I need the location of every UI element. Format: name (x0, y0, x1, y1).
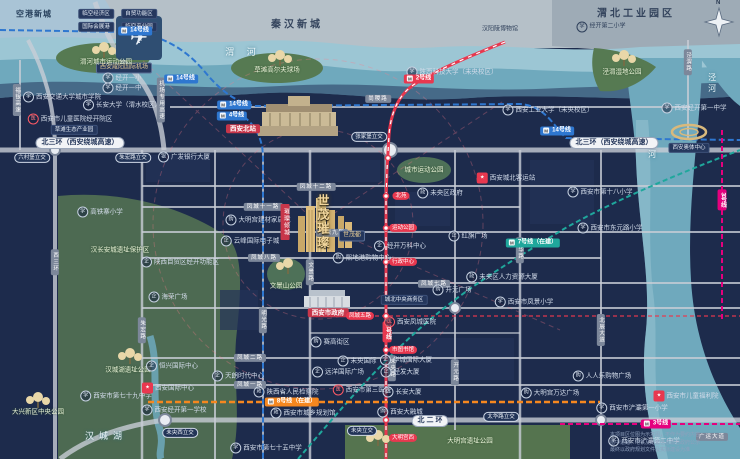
shop-label-113: 购西安大融城 (377, 407, 423, 418)
road-v-label-58: 福银高速 (13, 84, 21, 116)
map-canvas: ✈ N 空港新城临空经济区自贸功能区国际会展港临空产业园西安咸阳国际机场秦汉新城… (0, 0, 740, 459)
poi-label-117: 企天朗时代中心 (212, 371, 264, 382)
metro-icon: M (644, 421, 650, 427)
tag-label-28: 草滩生态产业园 (51, 125, 98, 135)
poi-label-109: 企华城国际大厦 (380, 355, 432, 366)
poi-icon: 企 (381, 367, 392, 378)
school-icon: 学 (568, 187, 579, 198)
red-poi-icon: ★ (654, 391, 665, 402)
shop-label-100: 购熙地港购物中心 (333, 253, 392, 264)
station-label-82: 大明宫西 (389, 434, 417, 442)
school-icon: 学 (142, 405, 153, 416)
metro-icon: M (543, 128, 549, 134)
poi-icon: 企 (212, 371, 223, 382)
station-label-81: 市图书馆 (389, 346, 417, 354)
station-label-77: 凤城五路 (346, 312, 374, 320)
poi-label-97: 企云峰国际电子城 (221, 236, 280, 247)
road-v-label-69: 文景路 (306, 259, 314, 285)
m-teal-label-90: M7号线（在建） (506, 239, 560, 248)
hospital-label-105: 医西安凤城医院 (384, 317, 436, 328)
red-poi-icon: ★ (142, 383, 153, 394)
gov-icon: 政 (417, 188, 428, 199)
poi-label-110: 企经发大厦 (381, 367, 420, 378)
disclaimer-text: 本项目区位图为示意图，不作为要约内容 图中道路、地铁及配套信息源自政府公示 最终… (610, 432, 700, 455)
tag-label-47: 城北中央商务区 (381, 295, 428, 305)
m-mag-v-label-92: 3号线 (718, 189, 727, 210)
gov-label-95: 政未央区政府 (417, 188, 463, 199)
school-icon: 学 (23, 92, 34, 103)
park-label-19: 汉长安城遗址保护区 (91, 246, 150, 253)
river-label-13: 汉城湖 (85, 431, 127, 441)
school-icon: 学 (83, 100, 94, 111)
m-red-label-88: M2号线 (404, 75, 434, 84)
tag-label-2: 自贸功能区 (121, 9, 157, 19)
poi-icon: 企 (312, 367, 323, 378)
m-blue-label-86: M4号线 (217, 112, 247, 121)
hospital-icon: 医 (333, 385, 344, 396)
m-mag-label-93: M3号线 (641, 420, 671, 429)
ic-label-55: 未央立交 (347, 426, 377, 436)
road-v-label-59: 西三环 (51, 249, 59, 275)
ic-label-56: 太华路立交 (483, 412, 519, 422)
poi-icon: 企 (449, 231, 460, 242)
poi-label-101: 企经开万科中心 (374, 241, 426, 252)
school-label-32: 学高铁寨小学 (77, 207, 123, 218)
school-label-24: 学经开一中 (103, 83, 142, 94)
school-icon: 学 (578, 223, 589, 234)
hospital-label-27: 医西安市儿童医院经开院区 (28, 114, 113, 125)
school-label-31: 学西安经开第一中学 (662, 103, 727, 114)
school-icon: 学 (230, 443, 241, 454)
river-label-10: 渭 河 (225, 47, 261, 57)
metro-icon: M (167, 76, 173, 82)
school-label-37: 学西安市第七十五中学 (230, 443, 302, 454)
m-blue-label-84: M14号线 (164, 75, 198, 84)
red-poi-label-43: ★西安城北客运站 (477, 173, 536, 184)
park-label-20: 汉城湖遗址公园 (105, 366, 151, 373)
school-icon: 学 (495, 297, 506, 308)
region-label-6: 秦汉新城 (271, 19, 323, 31)
station-label-80: 行政中心 (389, 258, 417, 266)
road-v-label-60: 泾渭路 (684, 49, 692, 75)
school-icon: 学 (662, 103, 673, 114)
poi-icon: 企 (149, 292, 160, 303)
road-label-61: 尚稷路 (365, 95, 391, 103)
school-icon: 学 (77, 207, 88, 218)
project-submarker-label: 世茂都 (339, 231, 365, 242)
school-label-34: 学西安市东元路小学 (578, 223, 643, 234)
poi-dark-label-7: 汉阳陵博物馆 (482, 27, 518, 34)
hw-label-49: 北三环（西安绕城高速） (571, 138, 658, 148)
shop-label-114: 购人人乐购物广场 (573, 371, 632, 382)
shop-label-115: 购大明宫万达广场 (521, 388, 580, 399)
school-label-39: 学西安市浐灞第一小学 (596, 403, 668, 414)
road-label-67: 凤城二路 (234, 354, 266, 362)
project-name-label: 世茂璀璨 (315, 194, 329, 250)
poi-icon: 企 (221, 236, 232, 247)
station-label-78: 北苑 (392, 192, 409, 200)
school-icon: 学 (503, 105, 514, 116)
shop-icon: 购 (521, 388, 532, 399)
ic-label-51: 六村堡立交 (14, 153, 50, 163)
school-icon: 学 (103, 83, 114, 94)
m-blue-label-87: M14号线 (540, 127, 574, 136)
bank-label-94: 银广发银行大厦 (158, 152, 210, 163)
poi-icon: 企 (338, 356, 349, 367)
metro-icon: M (268, 399, 274, 405)
poi-icon: 企 (374, 241, 385, 252)
region-light-label-0: 空港新城 (16, 9, 52, 18)
shop-icon: 购 (377, 407, 388, 418)
park-label-22: 大明宫遗址公园 (447, 437, 493, 444)
tag-label-46: 西安奥体中心 (668, 143, 709, 153)
ic-label-53: 张家堡立交 (351, 132, 387, 142)
red-poi-icon: ★ (477, 173, 488, 184)
road-label-76: 广运大道 (696, 433, 728, 441)
park-label-17: 城市运动公园 (405, 166, 444, 173)
road-v-label-75: 北辰大道 (597, 314, 605, 346)
poi-label-108: 企远洋国际广场 (312, 367, 364, 378)
poi-label-99: 企海荣广场 (149, 292, 188, 303)
red-poi-label-44: ★西安国际中心 (142, 383, 194, 394)
poi-label-102: 企红旗广场 (449, 231, 488, 242)
ic-label-52: 朱宏路立交 (115, 153, 151, 163)
road-v-label-71: 朱宏路 (138, 317, 146, 343)
road-label-62: 凤城十二路 (297, 183, 336, 191)
school-label-26: 学长安大学（渭水校区） (83, 100, 161, 111)
park-label-16: 泾渭湿地公园 (603, 68, 642, 75)
poi-label-107: 企未央国际 (338, 356, 377, 367)
tag-label-1: 临空经济区 (78, 9, 114, 19)
poi-icon: 企 (380, 355, 391, 366)
shop-icon: 购 (226, 215, 237, 226)
gov-label-119: 政西安市城乡规划馆 (271, 408, 336, 419)
tag-label-3: 国际会展港 (78, 22, 114, 32)
metro-icon: M (509, 240, 515, 246)
metro-icon: M (220, 102, 226, 108)
road-v-label-73: 开元路 (451, 359, 459, 385)
gov-icon: 政 (254, 387, 265, 398)
school-label-33: 学西安市第十八小学 (568, 187, 633, 198)
shop-label-103: 购开元广场 (433, 285, 472, 296)
region-label-8: 渭北工业园区 (597, 8, 675, 20)
shop-icon: 购 (573, 371, 584, 382)
m-blue-label-83: M14号线 (118, 27, 152, 36)
bank-icon: 银 (158, 152, 169, 163)
red-tag-label-42: 西安市政府 (308, 308, 349, 317)
metro-icon: M (407, 76, 413, 82)
gov-icon: 政 (271, 408, 282, 419)
school-icon: 学 (596, 403, 607, 414)
poi-icon: 企 (146, 361, 157, 372)
gov-icon: 政 (466, 272, 477, 283)
park-label-15: 草滩高尔夫球场 (254, 66, 300, 73)
poi-label-116: 企恒兴国际中心 (146, 361, 198, 372)
park-label-21: 大兴新区中央公园 (12, 408, 64, 415)
metro-icon: M (220, 113, 226, 119)
road-v-label-70: 明光路 (259, 307, 267, 333)
red-tag-label-41: 西安北站 (226, 124, 260, 133)
river-v-label-12: 泾河 (707, 73, 716, 95)
poi-icon: 企 (141, 257, 152, 268)
hospital-label-112: 医西安市第三医院 (333, 385, 392, 396)
metro-icon: M (121, 28, 127, 34)
road-v-label-57: 机场专用高速 (157, 78, 165, 123)
shop-icon: 购 (433, 285, 444, 296)
m-blue-label-85: M14号线 (217, 101, 251, 110)
school-dark-icon: 学 (576, 22, 587, 33)
hw-label-48: 北三环（西安绕城高速） (37, 138, 124, 148)
gov-label-104: 政未央区人力资源大厦 (466, 272, 538, 283)
road-label-65: 凤城八路 (248, 254, 280, 262)
station-label-79: 运动公园 (389, 224, 417, 232)
shop-label-106: 购赛高街区 (311, 337, 350, 348)
hospital-icon: 医 (384, 317, 395, 328)
map-labels-layer: 空港新城临空经济区自贸功能区国际会展港临空产业园西安咸阳国际机场秦汉新城汉阳陵博… (0, 0, 740, 459)
ic-label-54: 未央西立交 (162, 428, 198, 438)
hospital-icon: 医 (28, 114, 39, 125)
school-icon: 学 (80, 391, 91, 402)
project-ribbon: 璀璨倾城 (281, 204, 290, 240)
road-label-63: 凤城十一路 (244, 203, 283, 211)
school-dark-label-9: 学经开第二小学 (576, 22, 625, 33)
park-label-18: 文景山公园 (270, 282, 303, 289)
red-poi-label-45: ★西安市儿童福利院 (654, 391, 719, 402)
m-orange-label-91: M8号线（在建） (265, 398, 319, 407)
gov-label-118: 政陕西省人民检察院 (254, 387, 319, 398)
poi-label-98: 企陕西自贸区经开功能区 (141, 257, 219, 268)
school-label-35: 学西安市凤景小学 (495, 297, 554, 308)
school-label-36: 学西安经开第一学校 (142, 405, 207, 416)
school-label-30: 学西安工业大学（未央校区） (503, 105, 594, 116)
park-label-14: 渭河城市运动公园 (80, 58, 132, 65)
shop-icon: 购 (311, 337, 322, 348)
shop-icon: 购 (333, 253, 344, 264)
